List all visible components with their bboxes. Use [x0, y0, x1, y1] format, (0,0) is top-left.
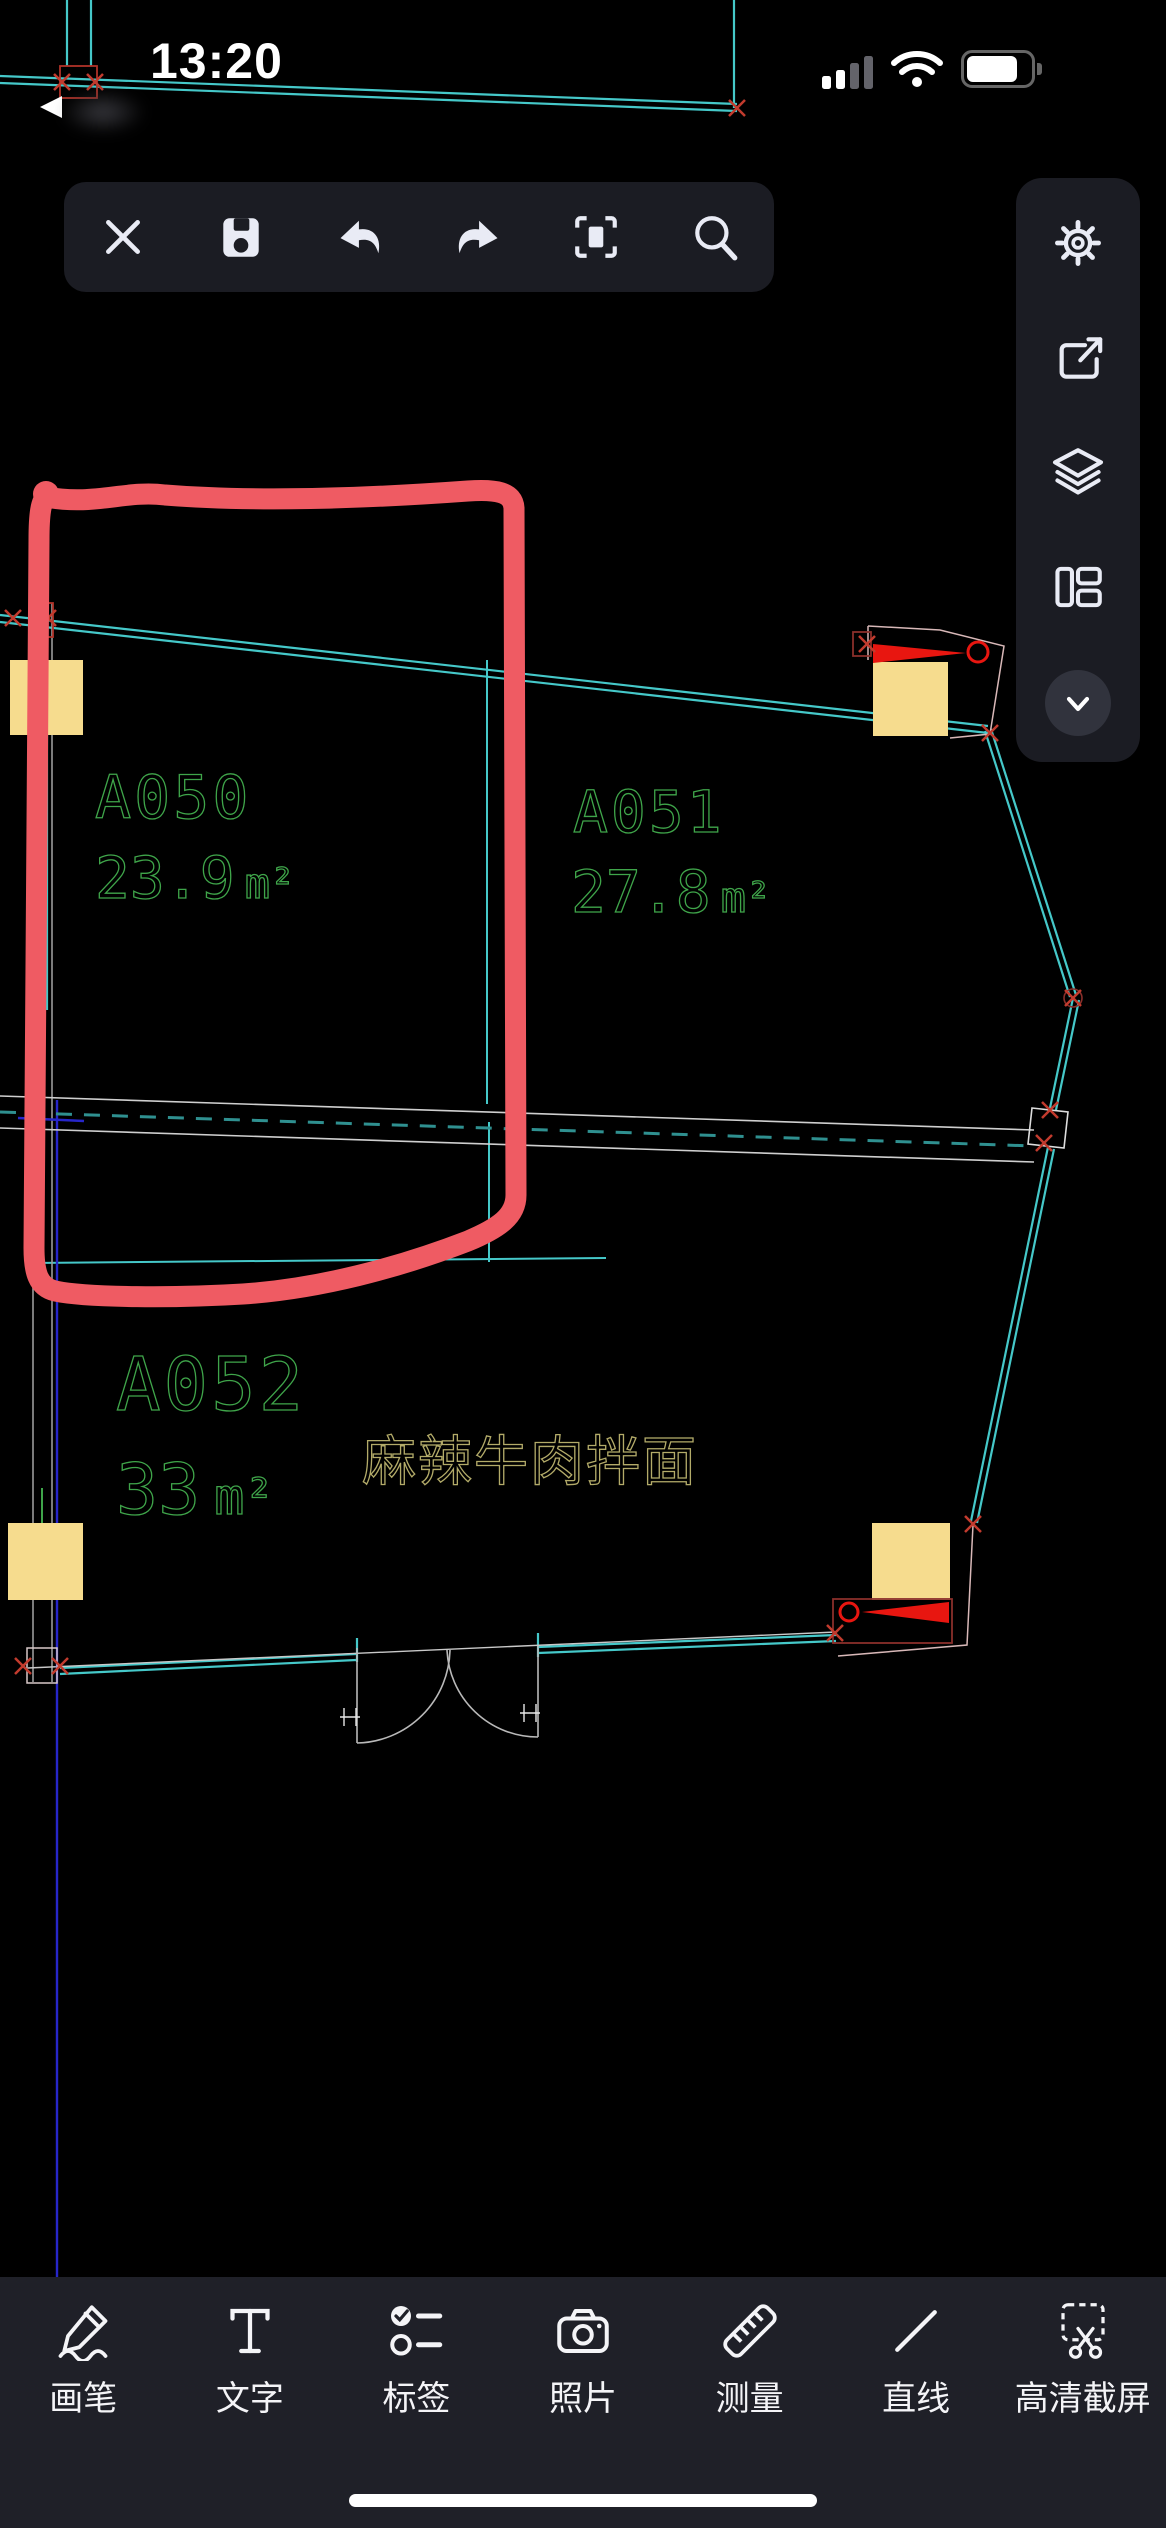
room-area-a051: 27.8m² [571, 858, 771, 926]
app-screen: A050 23.9m² A051 27.8m² A052 33m² 麻辣牛肉拌面… [0, 0, 1166, 2528]
straight-line-icon [886, 2301, 946, 2361]
bottom-toolbar: 画笔 文字 标签 [0, 2277, 1166, 2528]
search-icon [690, 212, 740, 262]
tool-label: 文字 [216, 2371, 284, 2420]
room-label-a051: A051 [573, 778, 725, 846]
redo-icon [452, 211, 504, 263]
undo-button[interactable] [328, 205, 392, 269]
tool-label: 测量 [716, 2371, 784, 2420]
tool-measure[interactable]: 测量 [666, 2277, 833, 2420]
fit-view-icon [571, 212, 621, 262]
tool-label: 高清截屏 [1015, 2371, 1151, 2420]
cad-canvas[interactable]: A050 23.9m² A051 27.8m² A052 33m² 麻辣牛肉拌面 [0, 0, 1166, 2528]
collapse-panel-button[interactable] [1045, 670, 1111, 736]
settings-gear-icon [1049, 214, 1107, 272]
room-note-text: 麻辣牛肉拌面 [362, 1430, 698, 1493]
wifi-icon [889, 48, 945, 90]
double-door [340, 1646, 540, 1743]
tool-label: 标签 [382, 2371, 450, 2420]
top-toolbar [64, 182, 774, 292]
share-icon [1050, 330, 1106, 386]
clock-text: 13:20 [150, 32, 283, 90]
layers-button[interactable] [1047, 441, 1109, 503]
tool-label: 直线 [882, 2371, 950, 2420]
room-labels: A050 23.9m² A051 27.8m² A052 33m² 麻辣牛肉拌面 [95, 763, 771, 1531]
fit-view-button[interactable] [564, 205, 628, 269]
room-area-a050: 23.9m² [95, 844, 295, 912]
cellular-signal-icon [822, 49, 873, 89]
home-indicator[interactable] [349, 2494, 817, 2507]
hd-screenshot-icon [1053, 2301, 1113, 2361]
search-button[interactable] [683, 205, 747, 269]
room-label-a050: A050 [95, 763, 252, 833]
blurred-text [60, 90, 146, 134]
close-button[interactable] [91, 205, 155, 269]
share-button[interactable] [1047, 327, 1109, 389]
measure-ruler-icon [720, 2301, 780, 2361]
tool-line[interactable]: 直线 [833, 2277, 1000, 2420]
corridor-lines [0, 1096, 1068, 1162]
undo-icon [334, 211, 386, 263]
brush-icon [53, 2301, 113, 2361]
text-icon [220, 2301, 280, 2361]
settings-button[interactable] [1047, 212, 1109, 274]
status-bar: 13:20 [0, 0, 1166, 140]
tool-brush[interactable]: 画笔 [0, 2277, 167, 2420]
tag-checklist-icon [386, 2301, 446, 2361]
tool-tag[interactable]: 标签 [333, 2277, 500, 2420]
battery-icon [961, 50, 1035, 88]
tool-hd-screenshot[interactable]: 高清截屏 [999, 2277, 1166, 2420]
save-icon [216, 212, 266, 262]
photo-camera-icon [553, 2301, 613, 2361]
tool-label: 照片 [549, 2371, 617, 2420]
collapse-chevron-icon [1058, 683, 1098, 723]
back-triangle-icon[interactable] [40, 96, 62, 118]
close-icon [100, 214, 146, 260]
tool-photo[interactable]: 照片 [500, 2277, 667, 2420]
layers-icon [1049, 443, 1107, 501]
redo-button[interactable] [446, 205, 510, 269]
save-button[interactable] [209, 205, 273, 269]
room-label-a052: A052 [116, 1342, 306, 1428]
viewports-button[interactable] [1047, 556, 1109, 618]
room-area-a052: 33m² [116, 1449, 275, 1531]
right-tool-panel [1016, 178, 1140, 762]
tool-label: 画笔 [49, 2371, 117, 2420]
tool-text[interactable]: 文字 [167, 2277, 334, 2420]
layout-viewports-icon [1049, 558, 1107, 616]
